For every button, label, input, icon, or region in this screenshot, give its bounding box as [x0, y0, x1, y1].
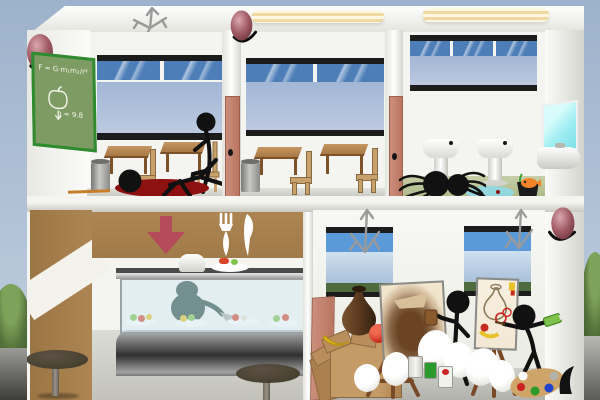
art-room [313, 210, 545, 400]
table-stem [263, 381, 270, 400]
blood-drop [496, 190, 500, 194]
roof-antenna-icon [128, 2, 172, 32]
sink-tap[interactable] [555, 143, 565, 148]
crumpled-paper[interactable] [354, 364, 380, 392]
fish [521, 178, 537, 188]
spider[interactable] [398, 166, 486, 200]
desk-leg [326, 154, 329, 174]
painted-table-shape [394, 293, 429, 309]
window-pane [97, 61, 160, 80]
glass-glare [97, 61, 160, 80]
paint-can[interactable] [408, 356, 423, 378]
severed-head [119, 170, 142, 193]
chalkboard: F = G·m₁m₂/r² g = 9.8 [31, 52, 97, 153]
table-top [27, 350, 88, 369]
stickman-head [447, 291, 470, 314]
paint-dab [531, 387, 540, 396]
chair-leg [371, 179, 376, 193]
stickman-head [197, 113, 216, 132]
paint-dab [519, 372, 528, 381]
down-arrow-sign [147, 216, 185, 254]
classroom-2 [241, 30, 385, 196]
sink-basin [477, 139, 513, 158]
door-knob[interactable] [228, 149, 233, 156]
classroom-1: F = G·m₁m₂/r² g = 9.8 [27, 30, 223, 196]
door-knob[interactable] [392, 153, 397, 160]
window-pane [164, 61, 228, 80]
ceiling-light [423, 8, 549, 22]
food-item [219, 258, 229, 264]
banana[interactable] [321, 334, 351, 350]
window-pane [453, 41, 493, 56]
glass-glare [453, 41, 493, 56]
paint-can[interactable] [438, 366, 453, 388]
washroom [403, 30, 545, 200]
cafeteria-wall-band [92, 212, 306, 258]
spider-body [423, 171, 449, 197]
window-pane [317, 64, 384, 82]
mug [425, 310, 437, 325]
paint-dab [545, 384, 554, 393]
down-arrow-icon [147, 232, 185, 254]
cafeteria [27, 210, 306, 400]
window-lower-pane [246, 82, 384, 130]
chair-leg [305, 182, 310, 195]
chalk-formula: F = G·m₁m₂/r² [38, 63, 87, 76]
wall-sink[interactable] [537, 147, 580, 169]
window-pane [246, 64, 313, 82]
chair [286, 151, 312, 193]
chair-leg [358, 179, 363, 193]
round-table [235, 364, 301, 400]
sink-tap[interactable] [449, 141, 453, 145]
sink-basin [423, 139, 459, 158]
window-haze-view [326, 252, 393, 283]
school-bell-icon[interactable] [546, 205, 578, 247]
ceiling-light [252, 10, 384, 23]
right-bush [582, 252, 600, 342]
arrow-stem [160, 216, 172, 233]
washroom-window [410, 35, 537, 91]
fork-icon [219, 214, 233, 256]
roof-antenna-icon [344, 204, 386, 256]
paint-dab [517, 383, 525, 391]
game-scene: F = G·m₁m₂/r² g = 9.8 [0, 0, 600, 400]
chef-hat [179, 254, 205, 272]
window-pane [496, 41, 537, 56]
window-bottom-frame [410, 85, 537, 91]
glass-glare [410, 41, 450, 56]
round-table [27, 350, 91, 400]
dead-stickman[interactable] [100, 140, 235, 200]
chair [352, 148, 378, 192]
classroom2-window [246, 58, 384, 136]
window-lower-pane [410, 56, 537, 85]
glass-glare [164, 61, 228, 80]
window-pane [410, 41, 450, 56]
classroom-door-1[interactable] [225, 96, 240, 197]
chair-leg [292, 182, 297, 195]
apple-doodle-icon [45, 84, 72, 127]
glass-glare [317, 64, 384, 82]
table-stem [52, 366, 59, 396]
cutlery-sign [213, 212, 261, 258]
sink-pedestal [488, 158, 502, 182]
left-bush [0, 284, 30, 358]
counter-lid-trim [116, 273, 306, 279]
beret[interactable] [557, 364, 577, 396]
right-ground [584, 336, 600, 400]
display-glass [120, 278, 306, 334]
knife-icon [244, 214, 253, 256]
paint-dab [442, 369, 449, 375]
food-item [231, 259, 238, 265]
window-bottom-frame [246, 130, 384, 136]
table-top [236, 364, 300, 383]
plate-on-counter[interactable] [211, 262, 249, 272]
glass-glare [496, 41, 537, 56]
glass-glare [246, 64, 313, 82]
paint-tube [543, 313, 562, 327]
left-ground [0, 348, 27, 400]
desk-leg [260, 157, 263, 175]
roof-antenna-icon [500, 204, 538, 252]
spider-abdomen [447, 174, 469, 196]
paint-can[interactable] [424, 362, 437, 379]
sink-tap[interactable] [503, 141, 507, 145]
